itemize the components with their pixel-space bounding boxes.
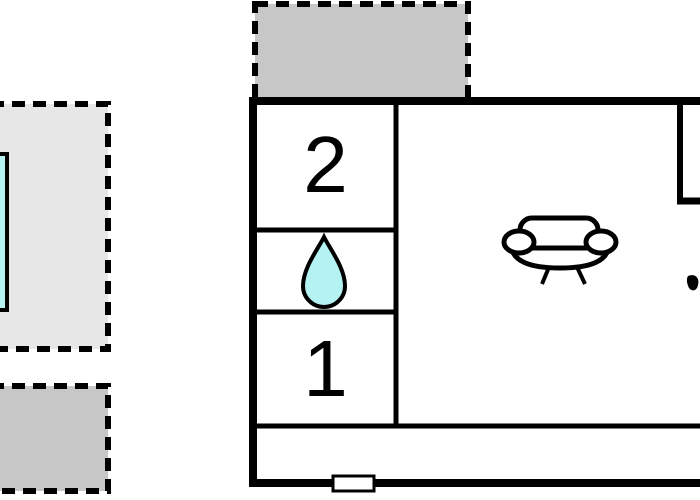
floor-plan-svg <box>0 0 700 500</box>
floor-plan: 2 1 <box>0 0 700 500</box>
upper-terrace-area <box>255 4 468 100</box>
window-icon <box>333 476 374 491</box>
sofa-arm-right <box>586 231 616 253</box>
sofa-arm-left <box>504 231 534 253</box>
pool-terrace-area <box>0 104 108 349</box>
lower-terrace-area <box>0 386 108 491</box>
swimming-pool <box>0 154 7 310</box>
